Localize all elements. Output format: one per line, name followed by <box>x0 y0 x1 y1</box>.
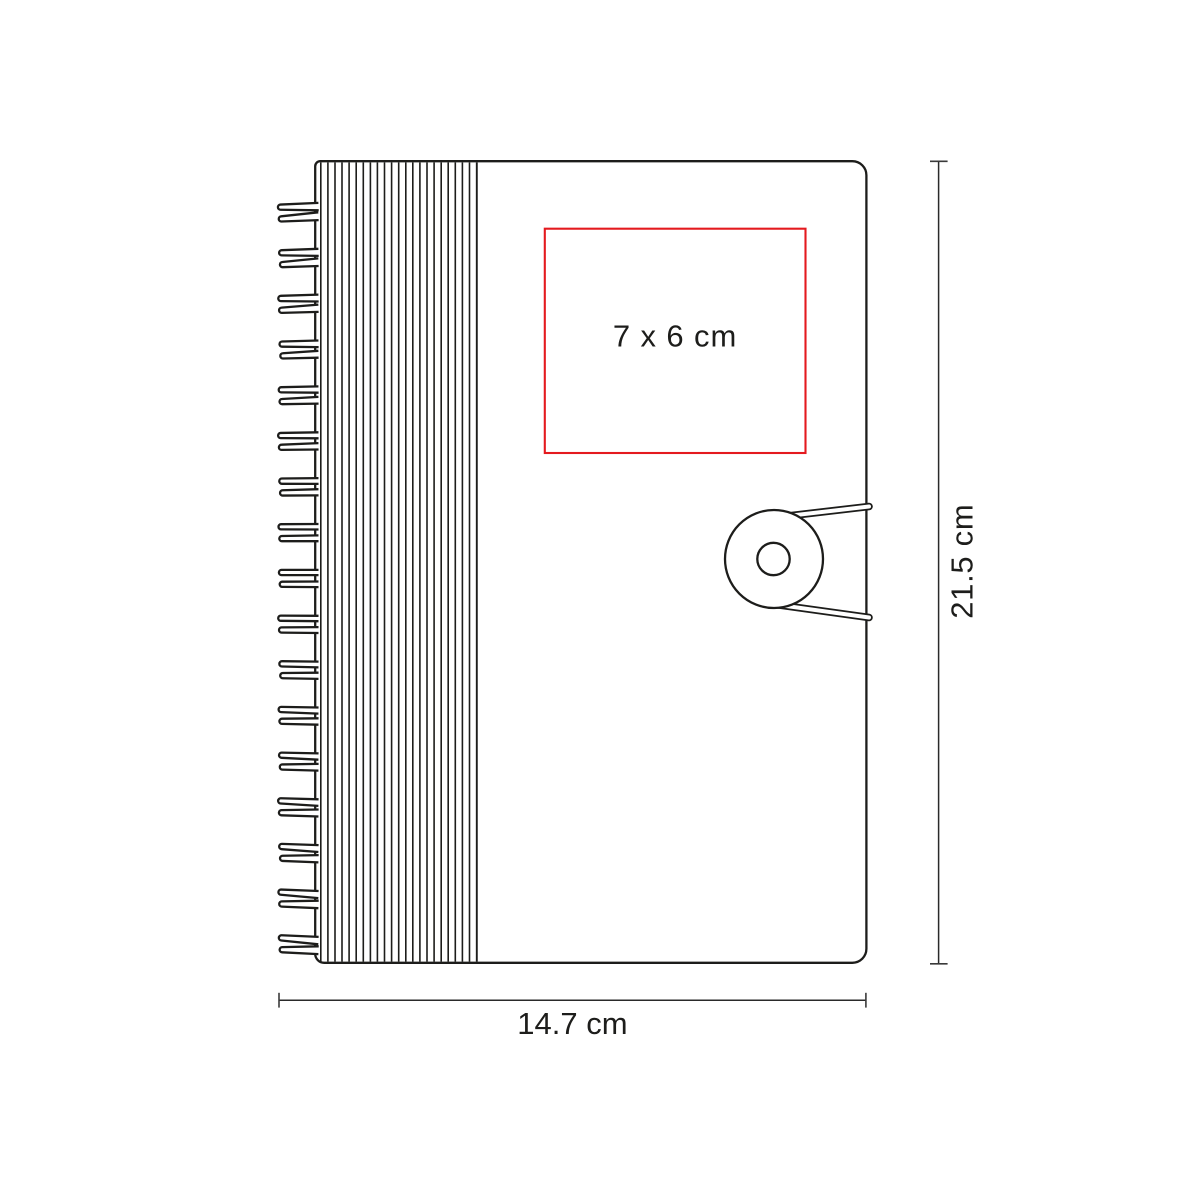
svg-text:21.5 cm: 21.5 cm <box>945 504 980 619</box>
svg-text:7 x 6 cm: 7 x 6 cm <box>613 319 737 354</box>
svg-text:14.7 cm: 14.7 cm <box>517 1006 627 1041</box>
